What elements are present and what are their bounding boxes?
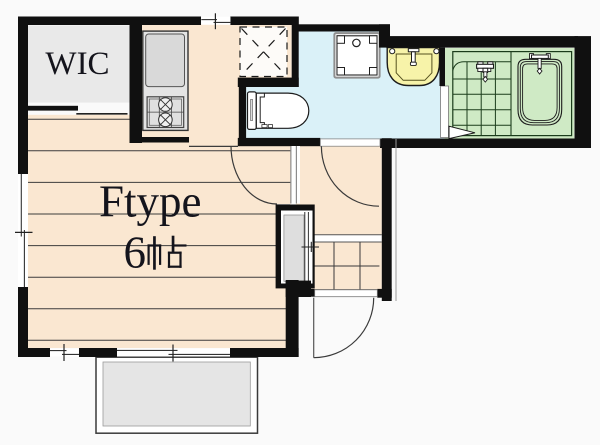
svg-text:6: 6 (124, 228, 147, 278)
svg-text:WIC: WIC (45, 46, 109, 82)
svg-text:Ftype: Ftype (99, 177, 202, 227)
